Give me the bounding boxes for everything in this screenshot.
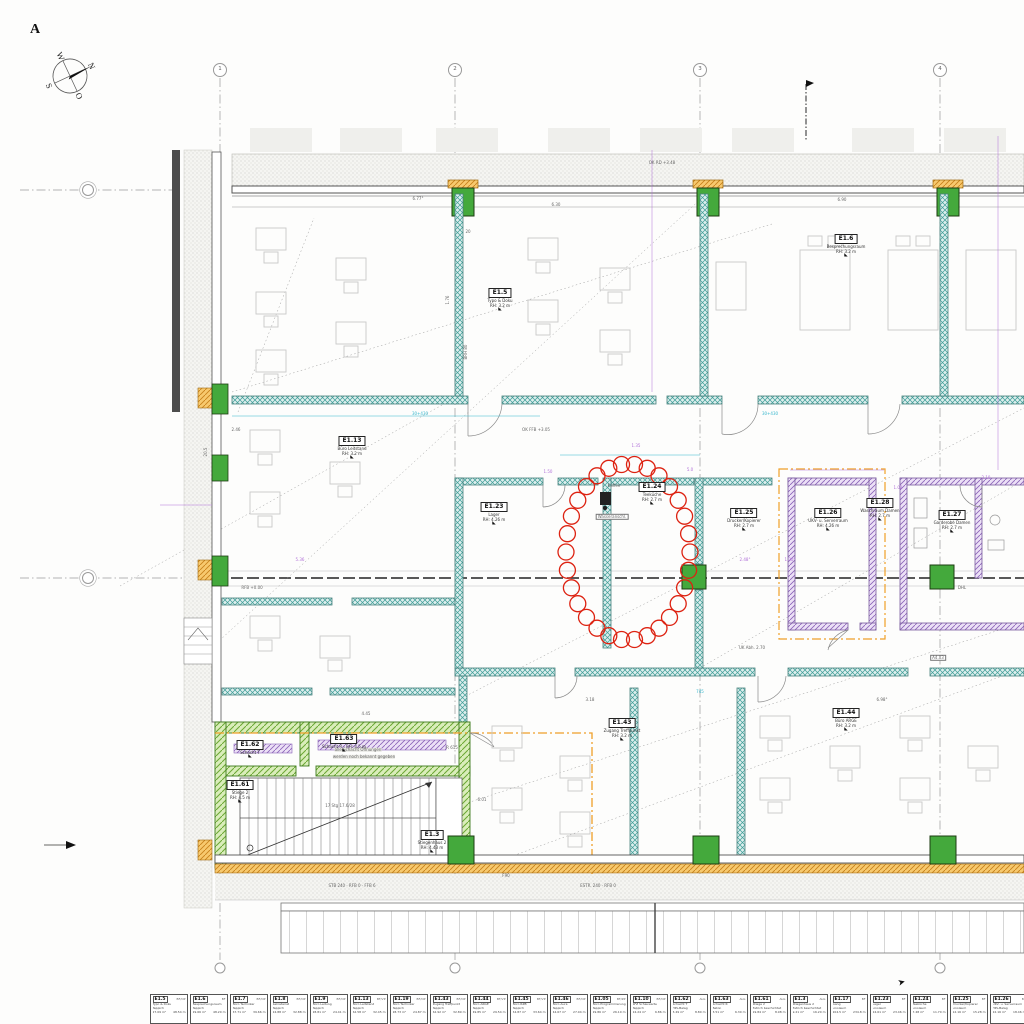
legend-room-id: E1.26: [993, 996, 1011, 1003]
elevation-marker-icon: ◣: [950, 530, 953, 535]
legend-room-perimeter: 32.45 m: [373, 1011, 385, 1015]
legend-room-tag: ALG: [779, 997, 785, 1001]
legend-room-area: 9.21 m²: [793, 1011, 805, 1015]
annotation-text: 5.0: [687, 468, 693, 472]
legend-room-id: E1.23: [873, 996, 891, 1003]
legend-room-area: 62.92 m²: [433, 1011, 447, 1015]
legend-room-area: 19.84 m²: [753, 1011, 767, 1015]
legend-room-card: E1.8 BF/OP Sekretariat Teppich 24.88 m² …: [270, 994, 308, 1024]
elevation-marker-icon: ◣: [248, 755, 251, 760]
legend-room-perimeter: 39.66 m: [253, 1011, 265, 1015]
legend-room-area: 12.16 m²: [953, 1011, 967, 1015]
grid-label: 2: [453, 67, 457, 73]
legend-room-tag: BF: [942, 997, 946, 1001]
room-stamp: E1.26 UKV- u. Serverraum RH: 4.26 m ◣: [808, 508, 847, 532]
annotation-text: F90: [502, 874, 509, 878]
legend-room-perimeter: 33.64 m: [533, 1011, 545, 1015]
legend-room-area: 24.24 m²: [633, 1011, 647, 1015]
mid-columns: [682, 565, 954, 589]
legend-room-tag: BF: [222, 997, 226, 1001]
legend-room-id: E1.62: [673, 996, 691, 1003]
annotation-text: 30+430: [412, 412, 428, 416]
legend-room-perimeter: 32.88 m: [293, 1011, 305, 1015]
annotation-text: 1.02: [894, 486, 903, 490]
room-stamp: E1.25 Drucker/Kopierer RH: 2.7 m ◣: [727, 508, 761, 532]
room-stamp: E1.24 Teeküche RH: 2.7 m ◣: [639, 482, 666, 506]
room-stamp: E1.27 Garderobe Damen RH: 2.7 m ◣: [934, 510, 971, 534]
annotation-text: 20.5: [204, 448, 208, 457]
elevation-marker-icon: ◣: [620, 738, 623, 743]
legend-room-id: E1.6: [193, 996, 208, 1003]
legend-room-tag: BF/OP: [177, 997, 186, 1001]
legend-room-tag: BF/OP: [577, 997, 586, 1001]
grid-bubble-bottom: [695, 963, 706, 974]
elevation-marker-icon: ◣: [350, 456, 353, 461]
room-id: E1.26: [815, 508, 842, 518]
legend-room-area: 7.48 m²: [913, 1011, 925, 1015]
legend-room-card: E1.25 BF Drucker/Kopierer Linoleum 12.16…: [950, 994, 988, 1024]
room-stamp: E1.43 Zugang Treffpunkt RH: 3.2 m ◣: [604, 718, 641, 742]
legend-room-card: E1.24 BF Teeküche Linoleum 7.48 m² 11.70…: [910, 994, 948, 1024]
legend-room-card: E1.61 ALG Stiege 2 Estrich beschichtet 1…: [750, 994, 788, 1024]
legend-room-tag: ALG: [819, 997, 825, 1001]
annotation-text: DHL: [958, 586, 966, 590]
legend-room-perimeter: 15.28 m: [973, 1011, 985, 1015]
room-stamp: E1.28 Waschraum Damen RH: 2.7 m ◣: [860, 498, 899, 522]
legend-room-card: E1.13 BF/VP Büro Leitstand Teppich 62.58…: [350, 994, 388, 1024]
legend-room-area: 22.16 m²: [993, 1011, 1007, 1015]
legend-room-id: E1.7: [233, 996, 248, 1003]
legend-room-card: E1.23 BF Lager Linoleum 24.61 m² 23.46 m: [870, 994, 908, 1024]
legend-room-tag: BF/OP: [257, 997, 266, 1001]
annotation-text: R 615: [446, 746, 458, 750]
room-id: E1.61: [227, 780, 254, 790]
legend-room-area: 28.81 m²: [313, 1011, 327, 1015]
legend-room-area: 24.88 m²: [273, 1011, 287, 1015]
room-stamp: E1.6 Besprechungsraum RH: 3.2 m ◣: [827, 234, 866, 258]
legend-room-area: 67.71 m²: [233, 1011, 247, 1015]
legend-room-perimeter: 8.80 m: [695, 1011, 706, 1015]
elevation-marker-icon: ◣: [878, 518, 881, 523]
legend-room-id: E1.8: [273, 996, 288, 1003]
annotation-text: 1.35: [632, 444, 641, 448]
room-id: E1.27: [939, 510, 966, 520]
elevation-marker-icon: ◣: [498, 308, 501, 313]
annotation-text: RFB +0.00: [241, 586, 262, 590]
room-stamp: E1.3 Stiegenhaus 2 RH: 4.43 m ◣: [418, 830, 447, 854]
annotation-text: Wasseranschl.: [596, 514, 629, 520]
legend-room-card: E1.9 BF/OP Büro Leitung Teppich 28.81 m²…: [310, 994, 348, 1024]
elevation-marker-icon: ◣: [492, 522, 495, 527]
legend-room-tag: BF/VP: [377, 997, 386, 1001]
legend-room-tag: ALG: [699, 997, 705, 1001]
cursor-icon: ➤: [897, 977, 907, 989]
room-stamp: E1.23 Lager RH: 4.26 m ◣: [481, 502, 508, 526]
legend-room-perimeter: 18.46 m: [1013, 1011, 1024, 1015]
legend-room-id: E1.61: [753, 996, 771, 1003]
legend-room-area: 62.58 m²: [353, 1011, 367, 1015]
annotation-text: 6.01: [478, 798, 487, 802]
room-id: E1.24: [639, 482, 666, 492]
legend-room-area: 29.86 m²: [593, 1011, 607, 1015]
legend-room-perimeter: 48.54 m: [173, 1011, 185, 1015]
annotation-text: 2.46: [232, 428, 241, 432]
north-flag-icon: [806, 80, 814, 140]
legend-room-card: E1.19 BF/OP Büro Techniker Teppich 28.73…: [390, 994, 428, 1024]
grid-label: 1: [218, 67, 222, 73]
legend-room-id: E1.46: [553, 996, 571, 1003]
legend-room-perimeter: 27.04 m: [573, 1011, 585, 1015]
left-facade: [172, 150, 221, 908]
elevation-marker-icon: ◣: [826, 528, 829, 533]
legend-room-card: E1.46 BF/OP Büro Aura Teppich 44.67 m² 2…: [550, 994, 588, 1024]
annotation-text: STB 240 · RFB 0 · FFB 6: [328, 884, 375, 888]
top-facade: [232, 128, 1024, 207]
annotation-text: A4.03: [930, 655, 946, 661]
legend-room-card: E1.26 BF UKV- u. Serverraum HPL-Belag 22…: [990, 994, 1024, 1024]
legend-room-perimeter: 8.98 m: [775, 1011, 786, 1015]
room-stamp: E1.62 Schacht T ◣: [237, 740, 264, 759]
legend-room-id: E1.3: [793, 996, 808, 1003]
room-stamp: E1.63 Schacht R · RH: 4.5 m ◣: [322, 734, 366, 753]
legend-room-tag: ALG: [739, 997, 745, 1001]
legend-room-id: E1.63: [713, 996, 731, 1003]
legend-room-card: E1.43 BF/OP Zugang Treffpunkt Teppich 62…: [430, 994, 468, 1024]
elevation-marker-icon: ◣: [742, 528, 745, 533]
grid-bubble-left: [82, 184, 94, 196]
legend-room-tag: BF: [862, 997, 866, 1001]
legend-room-perimeter: 26.10 m: [613, 1011, 625, 1015]
room-id: E1.3: [421, 830, 444, 840]
annotation-text: OK FFB +3.05: [522, 428, 550, 432]
legend-room-perimeter: 6.86 m: [655, 1011, 666, 1015]
legend-room-id: E1.05: [593, 996, 611, 1003]
compass-s: S: [44, 81, 55, 90]
legend-room-card: E1.10 BF/OP SFZ Schauwarte Teppich 24.24…: [630, 994, 668, 1024]
legend-room-card: E1.5 BF/OP Typo & Doku Teppich 27.09 m² …: [150, 994, 188, 1024]
legend-room-id: E1.25: [953, 996, 971, 1003]
room-id: E1.62: [237, 740, 264, 750]
annotation-text: 6.98°: [877, 698, 888, 702]
grid-bubble-left: [82, 572, 94, 584]
room-id: E1.63: [331, 734, 358, 744]
elevation-marker-icon: ◣: [430, 850, 433, 855]
room-stamp: E1.5 Typo & Doku RH: 3.2 m ◣: [487, 288, 512, 312]
legend-room-perimeter: 24.87 m: [413, 1011, 425, 1015]
legend-room-tag: BF: [982, 997, 986, 1001]
legend-room-area: 28.73 m²: [393, 1011, 407, 1015]
compass-n: N: [86, 61, 98, 71]
legend-room-perimeter: 24.41 m: [333, 1011, 345, 1015]
elevation-marker-icon: ◣: [844, 254, 847, 259]
annotation-text: 1.50: [544, 470, 553, 474]
legend-room-id: E1.5: [153, 996, 168, 1003]
wc-zone: [900, 478, 1024, 630]
legend-room-tag: BF: [902, 997, 906, 1001]
room-id: E1.13: [339, 436, 366, 446]
elevation-marker-icon: ◣: [844, 728, 847, 733]
grid-bubble-bottom: [215, 963, 226, 974]
legend-room-tag: BF/ZP: [617, 997, 626, 1001]
annotation-text: 17 Stg 17.6/28: [325, 804, 355, 808]
annotation-text: Kaffee: [608, 484, 621, 488]
annotation-text: werden noch bekannt gegeben: [333, 755, 395, 759]
legend-room-card: E1.44 BF/VP Büro ARGE Teppich 49.85 m² 2…: [470, 994, 508, 1024]
legend-room-card: E1.7 BF/OP Büro Techniker Teppich 67.71 …: [230, 994, 268, 1024]
legend-room-perimeter: 48.20 m: [213, 1011, 225, 1015]
legend-room-tag: BF/OP: [297, 997, 306, 1001]
legend-room-area: 44.67 m²: [553, 1011, 567, 1015]
legend-room-perimeter: 32.89 m: [453, 1011, 465, 1015]
grid-bubble-bottom: [935, 963, 946, 974]
legend-room-tag: BF/VP: [497, 997, 506, 1001]
room-stamp: E1.61 Stiege 2 RH: 4.5 m ◣: [227, 780, 254, 804]
annotation-text: 30+430: [762, 412, 778, 416]
annotation-text: ESTR. 240 · RFB 0: [580, 884, 616, 888]
legend-room-card: E1.45 BF/VP Büro RZB Teppich 54.87 m² 33…: [510, 994, 548, 1024]
entry-arrow-icon: [44, 841, 76, 849]
annotation-text: OK RD +3.48: [649, 161, 675, 165]
legend-room-tag: BF/OP: [457, 997, 466, 1001]
annotation-text: UK Abh. 2.70: [739, 646, 765, 650]
elevation-marker-icon: ◣: [342, 749, 345, 754]
room-id: E1.28: [867, 498, 894, 508]
legend-room-perimeter: 16.20 m: [813, 1011, 825, 1015]
legend-room-id: E1.10: [633, 996, 651, 1003]
legend-room-area: 54.87 m²: [513, 1011, 527, 1015]
legend-room-area: 3.51 m²: [713, 1011, 725, 1015]
annotation-text: BRH 80: [464, 345, 468, 360]
legend-room-id: E1.24: [913, 996, 931, 1003]
legend-room-card: E1.63 ALG Schacht R Beton 3.51 m² 6.30 m: [710, 994, 748, 1024]
annotation-text: 6.90: [838, 198, 847, 202]
room-id: E1.6: [835, 234, 858, 244]
exterior-stair: [184, 618, 212, 664]
room-id: E1.44: [833, 708, 860, 718]
legend-room-card: E1.17 BF Gang Linoleum 204.5 m² 234.8 m: [830, 994, 868, 1024]
legend-room-area: 24.61 m²: [873, 1011, 887, 1015]
room-id: E1.43: [609, 718, 636, 728]
annotation-text: 20: [465, 230, 470, 234]
grid-bubble-bottom: [450, 963, 461, 974]
floorplan-sheet: A N O S W 1 2 3 4 E1.5 Typo & Doku RH: 3…: [0, 0, 1024, 1024]
legend-room-area: 27.09 m²: [153, 1011, 167, 1015]
elevation-marker-icon: ◣: [650, 502, 653, 507]
grid-label: 4: [938, 67, 942, 73]
grid-bubble-top: 1: [213, 63, 227, 77]
grid-bubble-top: 2: [448, 63, 462, 77]
annotation-text: 745: [696, 690, 704, 694]
colonnade: [281, 903, 1024, 953]
grid-bubble-top: 4: [933, 63, 947, 77]
legend-room-card: E1.62 ALG Schacht T HPL-Belag 3.49 m² 8.…: [670, 994, 708, 1024]
annotation-text: 1.76: [446, 296, 450, 305]
legend-room-perimeter: 29.54 m: [493, 1011, 505, 1015]
grid-bubble-top: 3: [693, 63, 707, 77]
room-legend-bar: E1.5 BF/OP Typo & Doku Teppich 27.09 m² …: [150, 994, 1024, 1024]
legend-room-id: E1.44: [473, 996, 491, 1003]
legend-room-id: E1.43: [433, 996, 451, 1003]
room-id: E1.23: [481, 502, 508, 512]
legend-room-area: 204.5 m²: [833, 1011, 847, 1015]
room-stamp: E1.13 Büro Leitstand RH: 3.2 m ◣: [337, 436, 366, 460]
compass-rose: N O S W: [20, 26, 130, 136]
legend-room-area: 3.49 m²: [673, 1011, 685, 1015]
annotation-text: 6.30: [552, 203, 561, 207]
legend-room-area: 29.66 m²: [193, 1011, 207, 1015]
legend-room-tag: BF/VP: [537, 997, 546, 1001]
annotation-text: 2.10: [982, 476, 991, 480]
legend-room-perimeter: 234.8 m: [853, 1011, 865, 1015]
legend-room-id: E1.13: [353, 996, 371, 1003]
legend-room-id: E1.9: [313, 996, 328, 1003]
room-id: E1.5: [489, 288, 512, 298]
legend-room-tag: BF/OP: [657, 997, 666, 1001]
annotation-text: 3.18: [586, 698, 595, 702]
legend-room-id: E1.17: [833, 996, 851, 1003]
annotation-text: 5.36: [296, 558, 305, 562]
legend-room-tag: BF/OP: [337, 997, 346, 1001]
legend-room-card: E1.3 ALG Stiegenhaus 2 Estrich beschicht…: [790, 994, 828, 1024]
legend-room-tag: BF/OP: [417, 997, 426, 1001]
room-stamp: E1.44 Büro ARGE RH: 3.2 m ◣: [833, 708, 860, 732]
legend-room-perimeter: 6.30 m: [735, 1011, 746, 1015]
legend-room-card: E1.6 BF Besprechungsraum Teppich 29.66 m…: [190, 994, 228, 1024]
elevation-marker-icon: ◣: [238, 800, 241, 805]
annotation-text: 4.45: [362, 712, 371, 716]
annotation-text: 2.48°: [740, 558, 751, 562]
legend-room-area: 49.85 m²: [473, 1011, 487, 1015]
grid-label: 3: [698, 67, 702, 73]
annotation-text: 1.30°: [785, 558, 796, 562]
legend-room-card: E1.05 BF/ZP Büro Programmierung Teppich …: [590, 994, 628, 1024]
legend-room-perimeter: 11.70 m: [933, 1011, 945, 1015]
annotation-text: 6.77°: [413, 197, 424, 201]
room-id: E1.25: [731, 508, 758, 518]
legend-room-perimeter: 23.46 m: [893, 1011, 905, 1015]
legend-room-id: E1.19: [393, 996, 411, 1003]
legend-room-id: E1.45: [513, 996, 531, 1003]
